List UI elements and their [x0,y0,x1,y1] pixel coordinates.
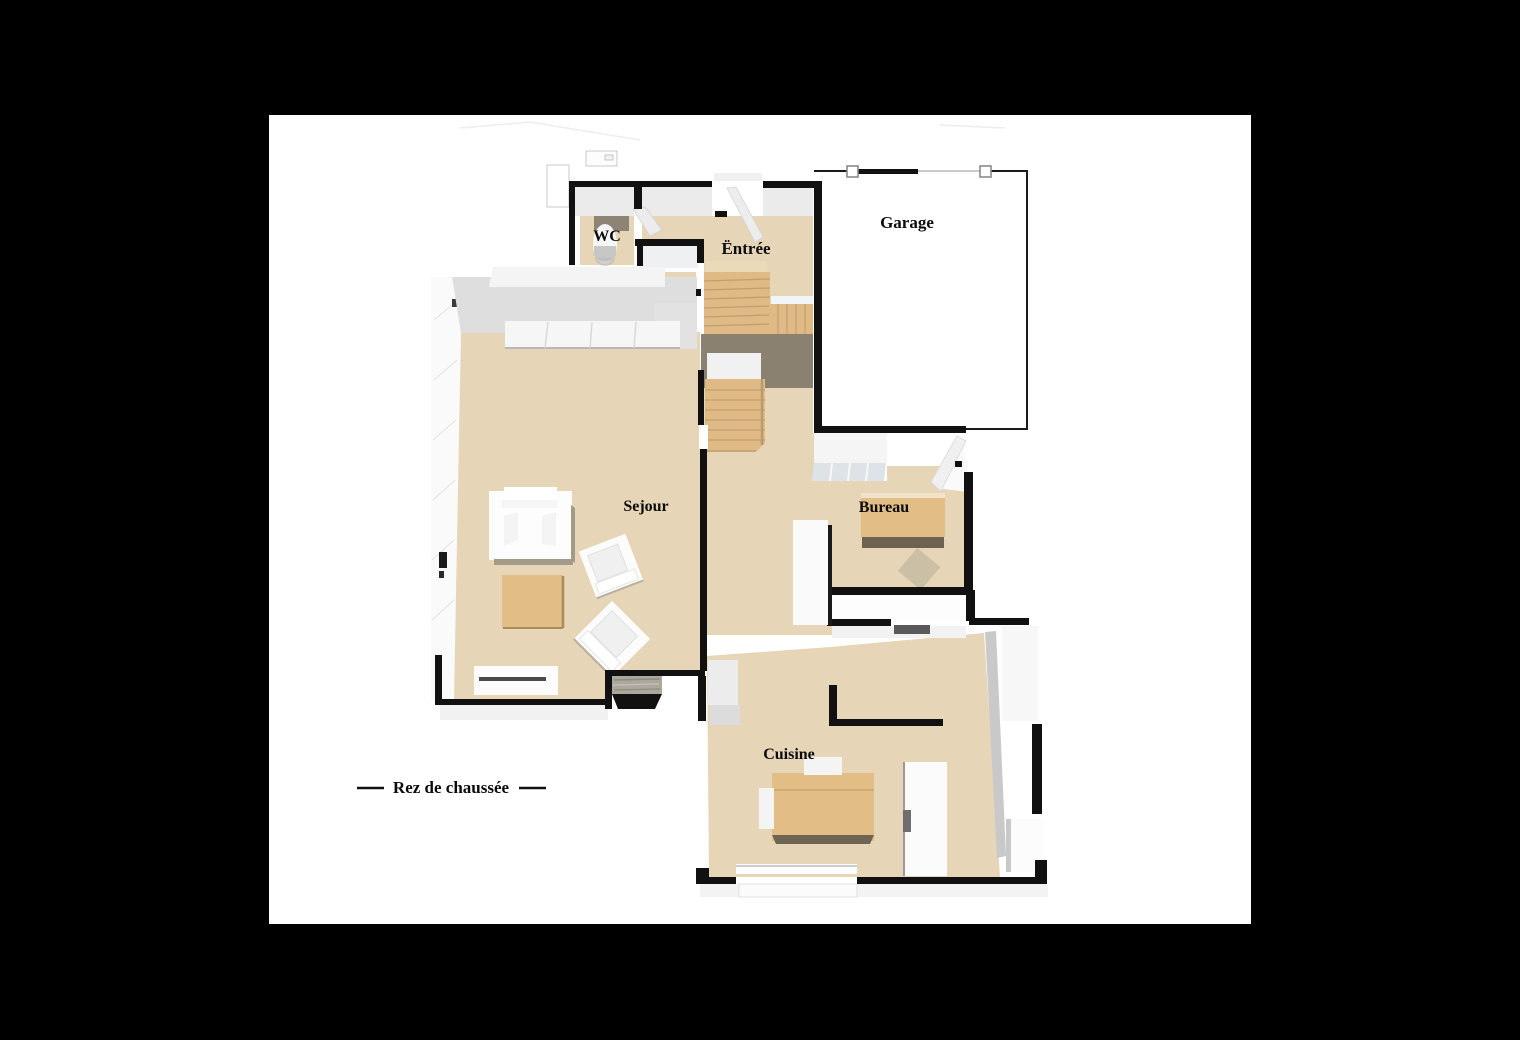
svg-text:Ëntrée: Ëntrée [721,239,771,258]
svg-text:Cuisine: Cuisine [763,746,815,763]
svg-text:Garage: Garage [880,213,934,232]
svg-text:WC: WC [593,228,621,245]
svg-text:Bureau: Bureau [859,499,909,516]
svg-text:Sejour: Sejour [623,498,668,515]
svg-text:Rez de chaussée: Rez de chaussée [393,778,510,797]
